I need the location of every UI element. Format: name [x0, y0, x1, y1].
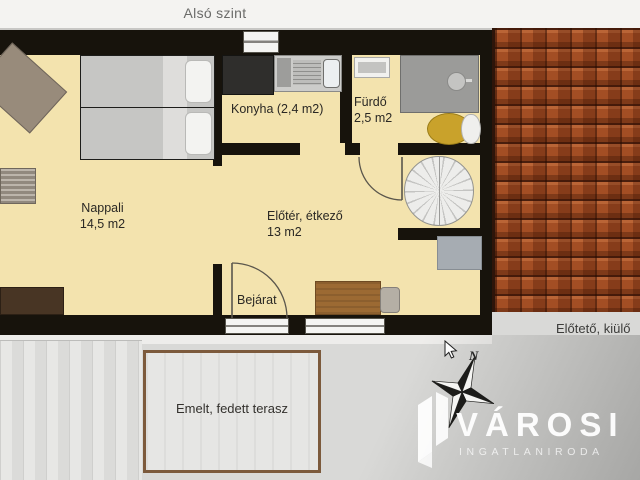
screenshot-stage: Alsó szint: [0, 0, 640, 480]
brand-name: VÁROSI: [456, 406, 640, 444]
brand-subtitle: INGATLANIRODA: [459, 446, 640, 458]
